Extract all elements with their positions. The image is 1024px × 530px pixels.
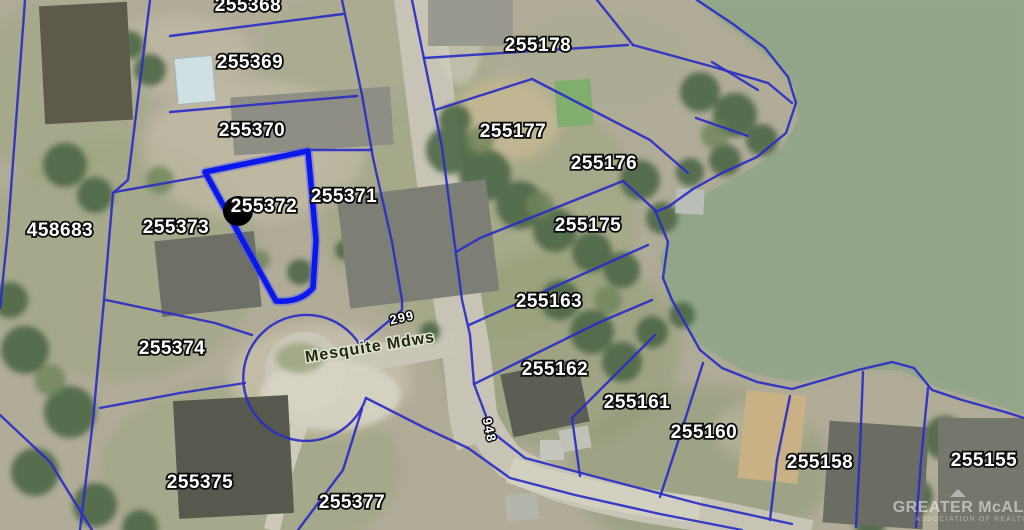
parcel-label-255177: 255177 <box>480 121 546 142</box>
parcel-label-255163: 255163 <box>516 291 582 312</box>
parcel-label-255369: 255369 <box>217 52 283 73</box>
parcel-label-255160: 255160 <box>671 422 737 443</box>
parcel-label-255372: 255372 <box>231 196 297 217</box>
shed-roof <box>505 493 539 522</box>
aerial-parcel-map: 255368 255369 255370 255372 255371 25537… <box>0 0 1024 530</box>
building-roof <box>173 395 294 519</box>
watermark-subtitle: ASSOCIATION OF REALTORS <box>915 516 1024 523</box>
parcel-label-255176: 255176 <box>571 153 637 174</box>
shed-roof <box>540 440 564 460</box>
parcel-label-255155: 255155 <box>951 450 1017 471</box>
watermark-title: GREATER McALLEN <box>893 499 1024 516</box>
building-roof <box>428 0 513 46</box>
parcel-label-255158: 255158 <box>787 452 853 473</box>
parcel-label-255178: 255178 <box>505 35 571 56</box>
parcel-label-255373: 255373 <box>143 217 209 238</box>
parcel-label-255368: 255368 <box>215 0 281 16</box>
building-roof <box>39 2 133 124</box>
swimming-pool <box>554 79 593 127</box>
parcel-label-458683: 458683 <box>27 220 93 241</box>
parcel-label-255370: 255370 <box>219 120 285 141</box>
parcel-label-255374: 255374 <box>139 338 205 359</box>
parcel-label-255162: 255162 <box>522 359 588 380</box>
parcel-label-255371: 255371 <box>311 186 377 207</box>
parcel-label-255375: 255375 <box>167 472 233 493</box>
parcel-label-255161: 255161 <box>604 392 670 413</box>
parcel-label-255175: 255175 <box>555 215 621 236</box>
swimming-pool <box>174 55 216 104</box>
parcel-label-255377: 255377 <box>319 492 385 513</box>
